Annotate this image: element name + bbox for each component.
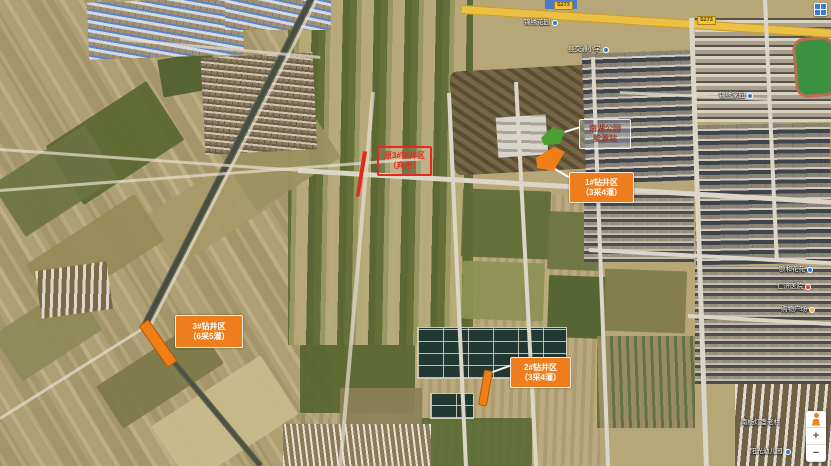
poi-name: 县交通小学 bbox=[568, 46, 601, 54]
label-line: 南湖公园 bbox=[589, 124, 621, 134]
field-patch bbox=[420, 418, 532, 466]
poi-label[interactable]: 购物广场 bbox=[781, 306, 815, 314]
label-well-1[interactable]: 1#钻井区 （3采4灌） bbox=[569, 172, 634, 203]
poi-name: 南杨灯盏老村 bbox=[741, 419, 780, 427]
poi-name: 购物广场 bbox=[781, 306, 807, 314]
orchard bbox=[597, 336, 695, 428]
poi-label[interactable]: 阳光幼儿园 bbox=[750, 448, 791, 456]
urban-block bbox=[582, 50, 698, 184]
layers-icon-dot bbox=[815, 4, 820, 9]
layers-icon-dot bbox=[815, 10, 820, 15]
label-line: 1#钻井区 bbox=[585, 178, 618, 188]
factory-roofs bbox=[496, 114, 549, 157]
label-energy-station[interactable]: 南湖公园 能源站 bbox=[579, 119, 631, 149]
label-well-2[interactable]: 2#钻井区 （3采4灌） bbox=[510, 357, 571, 388]
layers-icon-dot bbox=[821, 4, 826, 9]
greenhouse-rows bbox=[283, 424, 431, 466]
shed-rows bbox=[35, 261, 113, 319]
label-line: 3#钻井区 bbox=[193, 322, 226, 332]
poi-dot-icon[interactable] bbox=[809, 307, 815, 313]
poi-name: 阳光幼儿园 bbox=[750, 448, 783, 456]
label-line: （6采5灌） bbox=[189, 332, 230, 342]
poi-dot-icon[interactable] bbox=[785, 449, 791, 455]
poi-label[interactable]: 南杨灯盏老村 bbox=[741, 419, 780, 427]
route-badge: S273 bbox=[554, 1, 573, 10]
poi-dot-icon[interactable] bbox=[552, 20, 558, 26]
poi-dot-icon[interactable] bbox=[807, 267, 813, 273]
field-patch bbox=[461, 188, 551, 259]
poi-name: 颐和花苑 bbox=[779, 266, 805, 274]
poi-name: 仁济医院 bbox=[777, 283, 803, 291]
map-zoom-control: + − bbox=[806, 411, 826, 462]
label-line: （3采4灌） bbox=[520, 373, 561, 383]
layers-icon-dot bbox=[821, 10, 826, 15]
poi-label[interactable]: 锦绣家园 bbox=[719, 92, 753, 100]
poi-name: 锦绣家园 bbox=[719, 92, 745, 100]
poi-dot-icon[interactable] bbox=[603, 47, 609, 53]
zoom-out-button[interactable]: − bbox=[806, 445, 826, 462]
field-patch bbox=[603, 269, 687, 334]
poi-label[interactable]: 颐和花苑 bbox=[779, 266, 813, 274]
streetview-pegman-button[interactable] bbox=[806, 411, 826, 428]
zoom-in-button[interactable]: + bbox=[806, 428, 826, 445]
satellite-map[interactable]: S273 S273 原3#钻井区 （弃用） 南湖公园 能源站 1#钻井区 （3采… bbox=[0, 0, 831, 466]
label-line: 2#钻井区 bbox=[524, 363, 557, 373]
poi-label[interactable]: 仁济医院 bbox=[777, 283, 811, 291]
label-line: （弃用） bbox=[389, 161, 421, 171]
route-badge: S273 bbox=[697, 16, 716, 25]
layers-icon[interactable] bbox=[814, 3, 827, 16]
poi-label[interactable]: 锦绣花园 bbox=[524, 19, 558, 27]
label-old-well-3[interactable]: 原3#钻井区 （弃用） bbox=[377, 146, 432, 176]
poi-label[interactable]: 县交通小学 bbox=[568, 46, 609, 54]
fish-pond bbox=[430, 393, 474, 419]
field-patch bbox=[461, 261, 545, 322]
poi-dot-icon[interactable] bbox=[747, 93, 753, 99]
label-line: 能源站 bbox=[593, 134, 617, 144]
poi-dot-icon[interactable] bbox=[805, 284, 811, 290]
pegman-icon bbox=[812, 413, 820, 426]
poi-name: 锦绣花园 bbox=[524, 19, 550, 27]
label-well-3[interactable]: 3#钻井区 （6采5灌） bbox=[175, 315, 243, 348]
stadium bbox=[791, 35, 831, 98]
label-line: （3采4灌） bbox=[581, 188, 622, 198]
village bbox=[87, 0, 244, 60]
label-line: 原3#钻井区 bbox=[384, 151, 425, 161]
